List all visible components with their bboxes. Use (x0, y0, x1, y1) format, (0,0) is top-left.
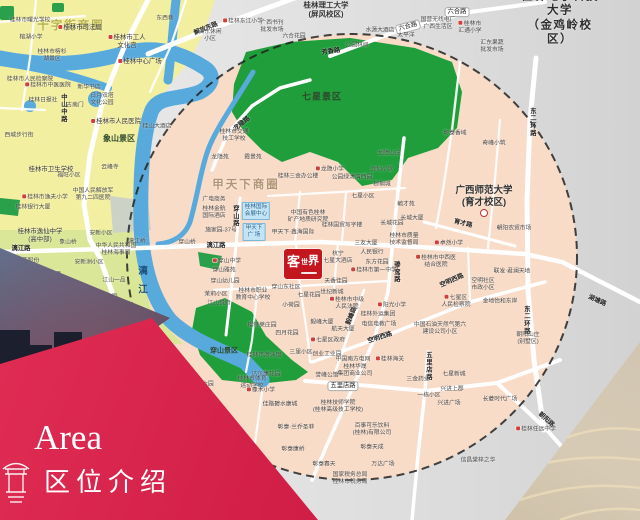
poi-icon (516, 427, 520, 431)
poi-icon (91, 119, 95, 123)
map-label: 江山悦府 (207, 300, 230, 307)
map-label: 新华书店 (77, 84, 100, 91)
map-label: 航天大厦 (331, 326, 354, 333)
map-label: 七星小区 (351, 193, 374, 200)
map-label: 电信电教广场 (362, 321, 397, 328)
map-label: 桂林市榕杉 湖景区 (38, 49, 67, 63)
map-label: 国家税务总局 桂林市税务局 (333, 472, 368, 486)
map-label: 穿山幼儿园 (211, 278, 240, 285)
map-label: 桂林技师学院 (桂林高级技工学校) (313, 400, 363, 414)
map-label (480, 209, 488, 217)
map-label: 中国南方电网 (336, 356, 371, 363)
map-label: 公园林间 (345, 42, 368, 49)
map-label: 漓东休闲 小区 (198, 29, 221, 43)
map-label: 信昌棠梓之华 (461, 457, 496, 464)
map-label: 桂林日报社 (29, 97, 58, 104)
map-label: 桂山大酒店 (143, 123, 172, 130)
map-label: 桂林中心广场 (118, 58, 161, 66)
map-label: 棕榈城 (373, 181, 390, 188)
map-label: 桂林电子科技大学 （金鸡岭校区） (520, 0, 600, 47)
map-label: 人民银行 (360, 249, 383, 256)
map-label: 太平洋 (397, 32, 414, 39)
poi-icon (416, 255, 420, 259)
map-label: 卓然小学 (435, 240, 463, 247)
map-label: 古南门 (66, 102, 83, 109)
map-label: 中华人民共和国 桂林海事局 (96, 243, 137, 257)
map-label: 桂林市曙光学校 (10, 17, 51, 24)
poi-icon (118, 59, 122, 63)
map-label: 三里小区 (289, 349, 312, 356)
map-label: 联发·君澜天地 (494, 268, 531, 275)
map-label: 施家园-37号 (205, 227, 237, 234)
poi-icon (22, 195, 26, 199)
map-label: 桂林市中级 人民法院 (330, 297, 364, 311)
map-label: 世纪新城 (320, 289, 343, 296)
map-label: 桂林市质量 技术监督局 (390, 233, 419, 247)
map-label: 桂林市游泳馆 (247, 352, 282, 359)
map-label: 穿山东社区 (272, 284, 301, 291)
poi-icon (213, 259, 217, 263)
map-label: 穿山景区 (210, 348, 238, 357)
poi-icon (376, 357, 380, 361)
map-label: 龙隐小学 (316, 166, 344, 173)
location-map-slide: 十字街商圈甲天下商圈联达商圈七星景区象山景区穿山景区桂林电子科技大学 （金鸡岭校… (0, 0, 640, 520)
map-label: 三金药业 (406, 376, 429, 383)
map-label: 西城步行街 (5, 132, 34, 139)
map-label: 水源大酒店 (366, 27, 395, 34)
map-label: 朝阳山庄 (别墅区) (516, 332, 539, 346)
map-label: 穿山桥 (178, 239, 195, 246)
map-label: 四月花园 (275, 330, 298, 337)
map-label: 桂林市卫生学校 (29, 166, 74, 174)
map-label: 桂林市工人 文化宫 (109, 34, 146, 50)
map-label: 穿山雅苑 (212, 267, 235, 274)
map-label: 桂林华晟 集团商业公司 (338, 364, 373, 378)
map-label: 桂林任远中学 (516, 426, 556, 433)
map-label: 育才路 (453, 218, 473, 230)
poi-icon (459, 21, 463, 25)
map-label: 公园绿涛湾西园 (332, 174, 373, 181)
map-label: 彰泰康桥 (281, 446, 304, 453)
map-label: 兴进上郡 (440, 386, 463, 393)
map-label: 广西师范大学 (育才校区) (455, 185, 512, 209)
map-label: 兴进广场 (437, 400, 460, 407)
map-label: 漓江路 (207, 242, 226, 250)
map-label: 日月双塔 文化公园 (90, 93, 113, 107)
map-label: 七星景区 (302, 91, 342, 102)
poi-icon (378, 303, 382, 307)
map-label: 穿山路 (231, 205, 239, 227)
map-label: 七星新城 (442, 371, 465, 378)
logo-char: 客 (287, 251, 300, 270)
map-label: 霞景苑 (244, 154, 261, 161)
map-label: 龙隐山庄 (377, 150, 400, 157)
map-label: 彰泰香域 (443, 130, 466, 137)
map-label: 龙隐苑 (211, 154, 228, 161)
map-label: 云峰寺 (101, 164, 118, 171)
map-label: 金地怡和东岸 (483, 298, 518, 305)
poi-icon (247, 388, 251, 392)
map-label: 七星区 人民检察院 (442, 295, 471, 309)
map-label: 彰泰春天 (312, 461, 335, 468)
map-label: 桂林金航 国际酒店 (202, 206, 225, 220)
map-label: 桂林东江小学 (223, 18, 263, 25)
map-label: 漓江路 (12, 245, 31, 253)
map-label: 甲天下·鑫海国际 (272, 229, 315, 236)
map-label: 穿山中学 (213, 258, 241, 265)
map-label: 毓才苑 (397, 201, 414, 208)
map-label: 天香佳园 (324, 278, 347, 285)
map-label: 朝阳农贸市场 (497, 225, 532, 232)
poi-icon (109, 35, 113, 39)
map-label: 毅峰大厦 (310, 319, 333, 326)
map-label: 桂林市中医医院 (25, 82, 71, 89)
map-label: 茉莉小区 (204, 291, 227, 298)
map-label: 阳光小学 (378, 302, 406, 309)
map-label: 空明社区 市政小区 (471, 278, 494, 292)
poi-icon (330, 297, 334, 301)
map-label: 江山一品 (102, 277, 125, 284)
poi-icon (58, 25, 62, 29)
map-label: 佳路碧水康城 (263, 401, 298, 408)
map-label: 中国有色桂林 矿产地质研究院 (288, 210, 329, 224)
poi-icon (311, 338, 315, 342)
map-label: 芳香路 (321, 47, 341, 57)
map-label: 东二环路 (528, 107, 536, 136)
map-label: 广电商务 (202, 196, 225, 203)
map-label: 湖塘路 (587, 294, 607, 309)
poi-icon (223, 19, 227, 23)
map-label: 桂林市中西医 结合医院 (416, 255, 456, 269)
map-label: 誉峰公馆 (315, 372, 338, 379)
map-label: 七星花园 (297, 292, 320, 299)
map-label: 汇东果蔬 批发市场 (480, 40, 503, 54)
map-label: 桂林银行大厦 (16, 204, 51, 211)
map-label: 六合路 (445, 7, 470, 17)
map-label: 三友大厦 (354, 240, 377, 247)
map-label: 会仙小区 (370, 166, 393, 173)
map-label: 榕湖小学 (19, 34, 42, 41)
map-label: 桂林市第一中学 (351, 267, 397, 274)
map-label: 奇峰小筑 (482, 140, 505, 147)
map-label: 百事可乐饮料 (桂林)有限公司 (353, 423, 392, 437)
map-label: 东二环路 (522, 305, 530, 334)
logo-underline (301, 272, 317, 274)
map-label: 桂林市逸仙中学 (高中部) (18, 228, 63, 244)
map-label: 桂林国际 会展中心 (242, 202, 270, 220)
map-label: 橡木小学 (247, 387, 275, 394)
map-label: 五里店路 (327, 381, 358, 391)
poi-icon (445, 295, 449, 299)
map-label: 杭宁 七星大酒店 (324, 251, 353, 265)
map-label: 长菱时代广场 (483, 396, 518, 403)
map-label: 六合花园 (282, 33, 305, 40)
map-label: 广西书刊 批发市场 (260, 20, 283, 34)
poi-icon (435, 241, 439, 245)
keshijie-project-logo[interactable]: 客 世 界 (284, 249, 322, 279)
map-label: 桂林理工大学 (屏风校区) (304, 1, 349, 20)
map-label: 长城大厦 (400, 215, 423, 222)
map-label: 桂林市司法局 (58, 24, 101, 32)
map-label: 象山景区 (103, 134, 135, 144)
map-label: 桂林市人民医院 (91, 118, 141, 126)
map-label: 甲天下商圈 (212, 178, 280, 192)
logo-char: 界 (308, 252, 319, 268)
map-label: 东西巷 (156, 15, 173, 22)
map-label: 彰泰天成 (360, 444, 383, 451)
map-label: 桂林市职业 教育中心学校 (236, 288, 271, 302)
map-label: 安新洲小区 (75, 259, 104, 266)
map-label: 东方花园 (365, 259, 388, 266)
logo-char: 世 (301, 257, 308, 267)
map-label: 桂林三金办公楼 (278, 173, 319, 180)
map-label: 桂林海关 (376, 356, 404, 363)
map-label: 樱特莱庄园 (248, 322, 277, 329)
map-label: 国营无线电厂 广西生活区 (421, 17, 456, 31)
poi-icon (25, 83, 29, 87)
map-label: 中国石油天然气第六 建设公司小区 (414, 322, 466, 336)
map-label: 中国人民解放军 第九二四医院 (73, 188, 114, 202)
map-label: 桂林市逸夫小学 (22, 194, 68, 201)
poi-icon (351, 268, 355, 272)
map-label: 甲天下 广 场 (243, 223, 266, 241)
map-label: 漓江 (135, 266, 147, 303)
map-label: 小荷园 (282, 302, 299, 309)
map-label: 空明西路 (367, 330, 393, 345)
map-label: 万达广场 (371, 461, 394, 468)
map-label: 彰泰·兰乔圣菲 (278, 424, 315, 431)
map-label: 一栋小区 (417, 392, 440, 399)
map-label: 七星区政府 (311, 337, 345, 344)
poi-icon (316, 167, 320, 171)
map-label: 桂林市 汇通小学 (458, 21, 481, 35)
map-label: 象山桥 (59, 239, 76, 246)
map-label: 桂林市交通 技工学校 (220, 129, 249, 143)
map-label: 桂林外运集团 (361, 311, 396, 318)
map-label: 空明西路 (439, 272, 465, 289)
map-label: 安新小区 (89, 230, 112, 237)
